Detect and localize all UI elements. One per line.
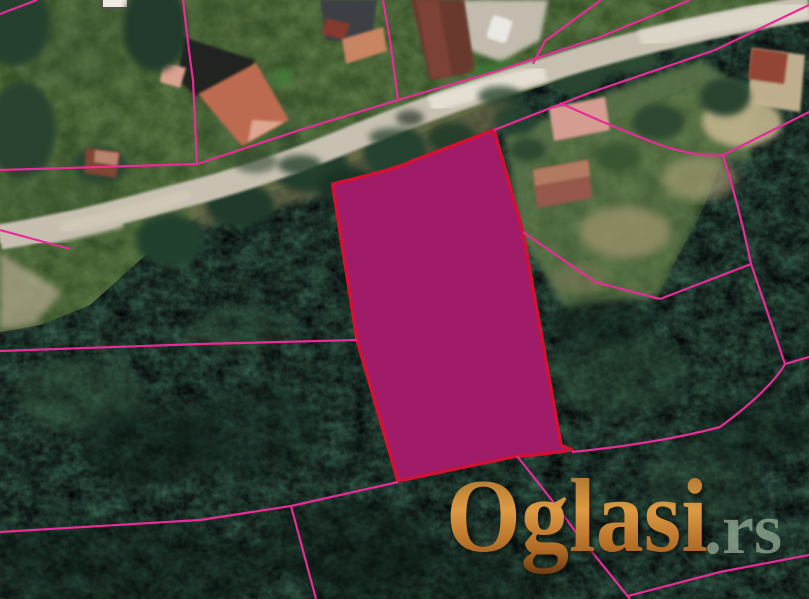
svg-text:Oglasi: Oglasi xyxy=(446,457,708,574)
svg-text:.rs: .rs xyxy=(704,489,782,569)
